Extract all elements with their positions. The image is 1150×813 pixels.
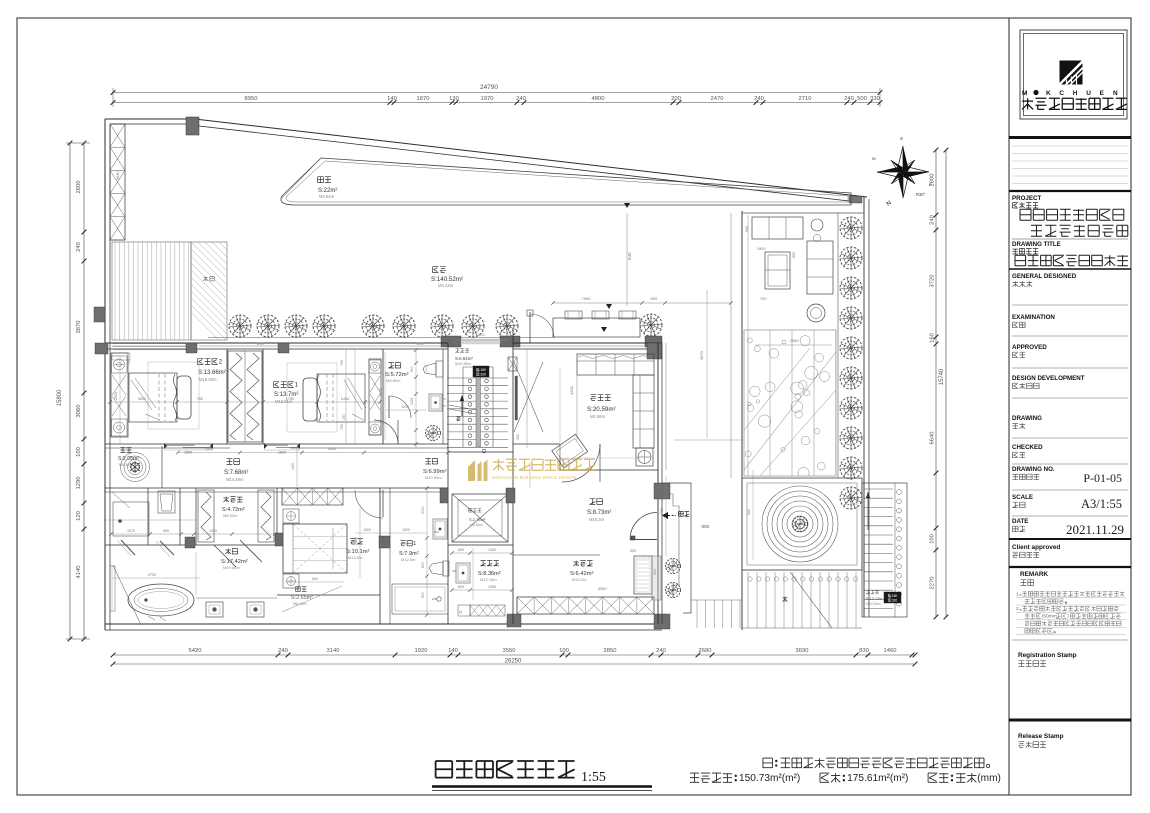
- svg-text:600: 600: [312, 577, 318, 581]
- svg-text:M8.22m: M8.22m: [293, 602, 307, 606]
- svg-text:600: 600: [410, 366, 414, 372]
- svg-text:3630: 3630: [116, 172, 120, 180]
- svg-text:1160: 1160: [291, 463, 295, 470]
- svg-text:宽:320: 宽:320: [476, 372, 486, 377]
- svg-text:240: 240: [754, 96, 764, 102]
- svg-text:1420: 1420: [209, 529, 217, 533]
- svg-text:760: 760: [340, 360, 344, 366]
- svg-text:2000: 2000: [421, 506, 425, 514]
- svg-text:M13.54m: M13.54m: [425, 475, 442, 480]
- svg-text:SCALE: SCALE: [1012, 494, 1033, 501]
- svg-text:1350: 1350: [488, 548, 496, 552]
- svg-text:H: H: [1073, 90, 1078, 97]
- svg-text:1400: 1400: [328, 447, 336, 451]
- svg-text:1920: 1920: [402, 528, 410, 532]
- svg-text:S:13.66m²: S:13.66m²: [198, 370, 226, 376]
- svg-text:100: 100: [76, 447, 82, 457]
- svg-text:S:2.05m²: S:2.05m²: [118, 456, 139, 462]
- svg-text:1:55: 1:55: [581, 770, 606, 785]
- svg-text:2: 2: [1016, 606, 1019, 612]
- svg-text:600: 600: [434, 530, 439, 534]
- svg-text:4140: 4140: [76, 566, 82, 579]
- svg-text:踏:180: 踏:180: [476, 367, 486, 372]
- svg-text:A3/1:55: A3/1:55: [1081, 497, 1122, 511]
- svg-text:1810: 1810: [477, 333, 485, 337]
- svg-text:1350: 1350: [488, 585, 496, 589]
- svg-text:830: 830: [859, 648, 869, 654]
- svg-text:S:8.73m²: S:8.73m²: [587, 510, 611, 516]
- svg-text:Client approved: Client approved: [1012, 544, 1060, 551]
- svg-text:K: K: [1046, 90, 1051, 97]
- svg-text:2021.11.29: 2021.11.29: [1066, 522, 1124, 537]
- svg-text:120: 120: [76, 511, 82, 521]
- svg-text:2270: 2270: [930, 577, 936, 590]
- svg-text:(50mm: (50mm: [1042, 614, 1057, 620]
- svg-text:S:140.52m²: S:140.52m²: [431, 276, 463, 283]
- svg-text:1870: 1870: [417, 96, 430, 102]
- svg-text:3870: 3870: [699, 350, 704, 360]
- svg-text:DRAWING NO.: DRAWING NO.: [1012, 466, 1055, 473]
- svg-text:900: 900: [421, 592, 425, 598]
- svg-text:M19.50m: M19.50m: [223, 565, 240, 570]
- svg-text:2600: 2600: [76, 181, 82, 194]
- svg-text:100: 100: [930, 534, 936, 544]
- svg-text:1225: 1225: [401, 405, 409, 409]
- svg-text:2000: 2000: [114, 392, 118, 400]
- svg-text:600: 600: [458, 548, 464, 552]
- svg-text:CHECKED: CHECKED: [1012, 444, 1043, 451]
- svg-text:1600: 1600: [278, 451, 286, 455]
- svg-text:760: 760: [340, 424, 344, 430]
- svg-text:2730: 2730: [148, 573, 156, 577]
- svg-text:M15.05m: M15.05m: [199, 377, 217, 382]
- svg-text:1125: 1125: [410, 398, 414, 405]
- svg-text:15800: 15800: [57, 389, 63, 406]
- svg-text:26250: 26250: [505, 659, 522, 665]
- svg-text:DESIGN DEVELOPMENT: DESIGN DEVELOPMENT: [1012, 375, 1085, 382]
- svg-text:M10.2m: M10.2m: [572, 577, 587, 582]
- svg-text:500: 500: [857, 96, 867, 102]
- svg-text:S:12.13m: S:12.13m: [866, 597, 882, 601]
- svg-text:S:20.59m²: S:20.59m²: [587, 406, 616, 413]
- svg-text:1070: 1070: [379, 388, 383, 396]
- svg-text:900: 900: [792, 252, 796, 258]
- svg-text:APPROVED: APPROVED: [1012, 344, 1047, 351]
- svg-text:3690: 3690: [796, 648, 809, 654]
- svg-text:W: W: [872, 156, 876, 161]
- svg-text:P-01-05: P-01-05: [1083, 471, 1122, 485]
- svg-text:M: M: [1022, 90, 1027, 97]
- svg-text:EXAMINATION: EXAMINATION: [1012, 314, 1055, 321]
- svg-text:M13.9m: M13.9m: [348, 555, 363, 560]
- svg-text:3870: 3870: [76, 321, 82, 334]
- svg-text:500: 500: [651, 296, 658, 301]
- svg-text:S:2.76m²: S:2.76m²: [469, 517, 486, 522]
- svg-text:7900: 7900: [582, 296, 592, 301]
- svg-text:2470: 2470: [711, 96, 724, 102]
- svg-text:(mm): (mm): [977, 773, 1001, 784]
- svg-text:600: 600: [458, 585, 464, 589]
- svg-text:E: E: [1100, 90, 1105, 97]
- svg-text:600: 600: [421, 562, 425, 568]
- svg-text:1070: 1070: [127, 529, 135, 533]
- svg-text:M4.66m: M4.66m: [470, 523, 483, 527]
- svg-text:1700: 1700: [660, 508, 664, 516]
- svg-text:2850: 2850: [604, 648, 617, 654]
- svg-text:Registration Stamp: Registration Stamp: [1018, 652, 1077, 659]
- svg-text:540: 540: [627, 252, 632, 260]
- svg-text:500: 500: [747, 509, 751, 515]
- svg-text:N: N: [1113, 90, 1118, 97]
- svg-text:DRAWING TITLE: DRAWING TITLE: [1012, 241, 1061, 248]
- svg-text:950: 950: [163, 529, 169, 533]
- svg-text:4550: 4550: [598, 587, 606, 591]
- svg-text:300: 300: [516, 434, 520, 440]
- svg-text:M12.16m: M12.16m: [480, 577, 497, 582]
- svg-text:R30°: R30°: [916, 192, 926, 197]
- svg-text:24790: 24790: [480, 84, 498, 91]
- svg-text:M14.48m: M14.48m: [226, 477, 244, 482]
- svg-text:M10.68m: M10.68m: [455, 362, 471, 366]
- svg-text:3600: 3600: [138, 397, 146, 401]
- svg-text:E: E: [929, 182, 932, 187]
- svg-text:1970: 1970: [481, 96, 494, 102]
- svg-text:M1.56m: M1.56m: [590, 414, 606, 419]
- svg-text:900: 900: [745, 226, 749, 232]
- svg-text:S:7.68m²: S:7.68m²: [224, 470, 248, 476]
- svg-text:DATE: DATE: [1012, 518, 1028, 525]
- svg-text:4800: 4800: [592, 96, 605, 102]
- svg-text:1060: 1060: [363, 528, 371, 532]
- svg-text:1500: 1500: [757, 247, 765, 251]
- svg-text:250: 250: [342, 414, 346, 420]
- svg-text:240: 240: [76, 242, 82, 252]
- svg-text:140: 140: [448, 648, 458, 654]
- svg-text:175.61m²(m²): 175.61m²(m²): [847, 773, 908, 784]
- svg-text:1290: 1290: [76, 477, 82, 490]
- svg-text:1: 1: [413, 541, 416, 547]
- svg-text:8950: 8950: [245, 96, 258, 102]
- svg-text:REMARK: REMARK: [1020, 571, 1048, 578]
- svg-text:240: 240: [516, 96, 526, 102]
- svg-text:1920: 1920: [415, 648, 428, 654]
- svg-text:1780: 1780: [286, 397, 294, 401]
- svg-text:450: 450: [630, 549, 636, 553]
- svg-text:宽:320: 宽:320: [888, 598, 898, 603]
- svg-text:2400: 2400: [354, 537, 358, 545]
- svg-text:5420: 5420: [189, 648, 202, 654]
- svg-text:-350: -350: [700, 524, 710, 529]
- svg-text:M4.23m: M4.23m: [438, 283, 454, 288]
- svg-text:3060: 3060: [76, 405, 82, 418]
- svg-text:DRAWING: DRAWING: [1012, 415, 1042, 422]
- svg-text:U: U: [1086, 90, 1091, 97]
- svg-text:200: 200: [671, 96, 681, 102]
- svg-text:150.73m²(m²): 150.73m²(m²): [739, 773, 800, 784]
- svg-text:M8.92m: M8.92m: [223, 513, 238, 518]
- svg-text:S:6.64m²: S:6.64m²: [455, 356, 473, 361]
- svg-text:Release Stamp: Release Stamp: [1018, 733, 1064, 740]
- svg-text:3720: 3720: [930, 275, 936, 288]
- svg-text:1460: 1460: [884, 648, 897, 654]
- svg-text:700: 700: [760, 297, 766, 301]
- svg-text:M10.3m: M10.3m: [589, 517, 605, 522]
- svg-text:1400: 1400: [416, 342, 424, 346]
- svg-text:4200: 4200: [569, 385, 574, 395]
- svg-text:1600: 1600: [184, 451, 192, 455]
- svg-text:15740: 15740: [939, 368, 945, 385]
- svg-text:1440: 1440: [341, 397, 349, 401]
- svg-text:2960: 2960: [790, 339, 798, 343]
- svg-text:S: S: [900, 136, 903, 141]
- svg-text:1: 1: [295, 382, 299, 389]
- svg-text:3550: 3550: [503, 648, 516, 654]
- svg-text:PROJECT: PROJECT: [1012, 195, 1041, 202]
- svg-text:760: 760: [197, 397, 203, 401]
- svg-text:2: 2: [219, 359, 223, 366]
- svg-text:MOKCHUEN BUILDING SPACE DESIGN: MOKCHUEN BUILDING SPACE DESIGN: [492, 475, 576, 480]
- svg-text:M9.80m: M9.80m: [386, 378, 401, 383]
- svg-text:C: C: [1059, 90, 1064, 97]
- svg-text:1: 1: [1016, 591, 1019, 597]
- svg-text:2710: 2710: [799, 96, 812, 102]
- svg-text:踏:180: 踏:180: [888, 593, 898, 598]
- svg-text:M4.84m: M4.84m: [319, 194, 335, 199]
- svg-text:3140: 3140: [327, 648, 340, 654]
- svg-text:6640: 6640: [930, 432, 936, 445]
- svg-text:M19.54m: M19.54m: [866, 602, 881, 606]
- svg-text:240: 240: [656, 648, 666, 654]
- svg-text:M12.0m: M12.0m: [401, 557, 416, 562]
- svg-text:350: 350: [127, 359, 131, 365]
- svg-text:1160: 1160: [256, 342, 264, 346]
- svg-text:900: 900: [653, 569, 657, 575]
- svg-text:Q: Q: [459, 609, 462, 614]
- svg-text:GENERAL DESIGNED: GENERAL DESIGNED: [1012, 273, 1077, 280]
